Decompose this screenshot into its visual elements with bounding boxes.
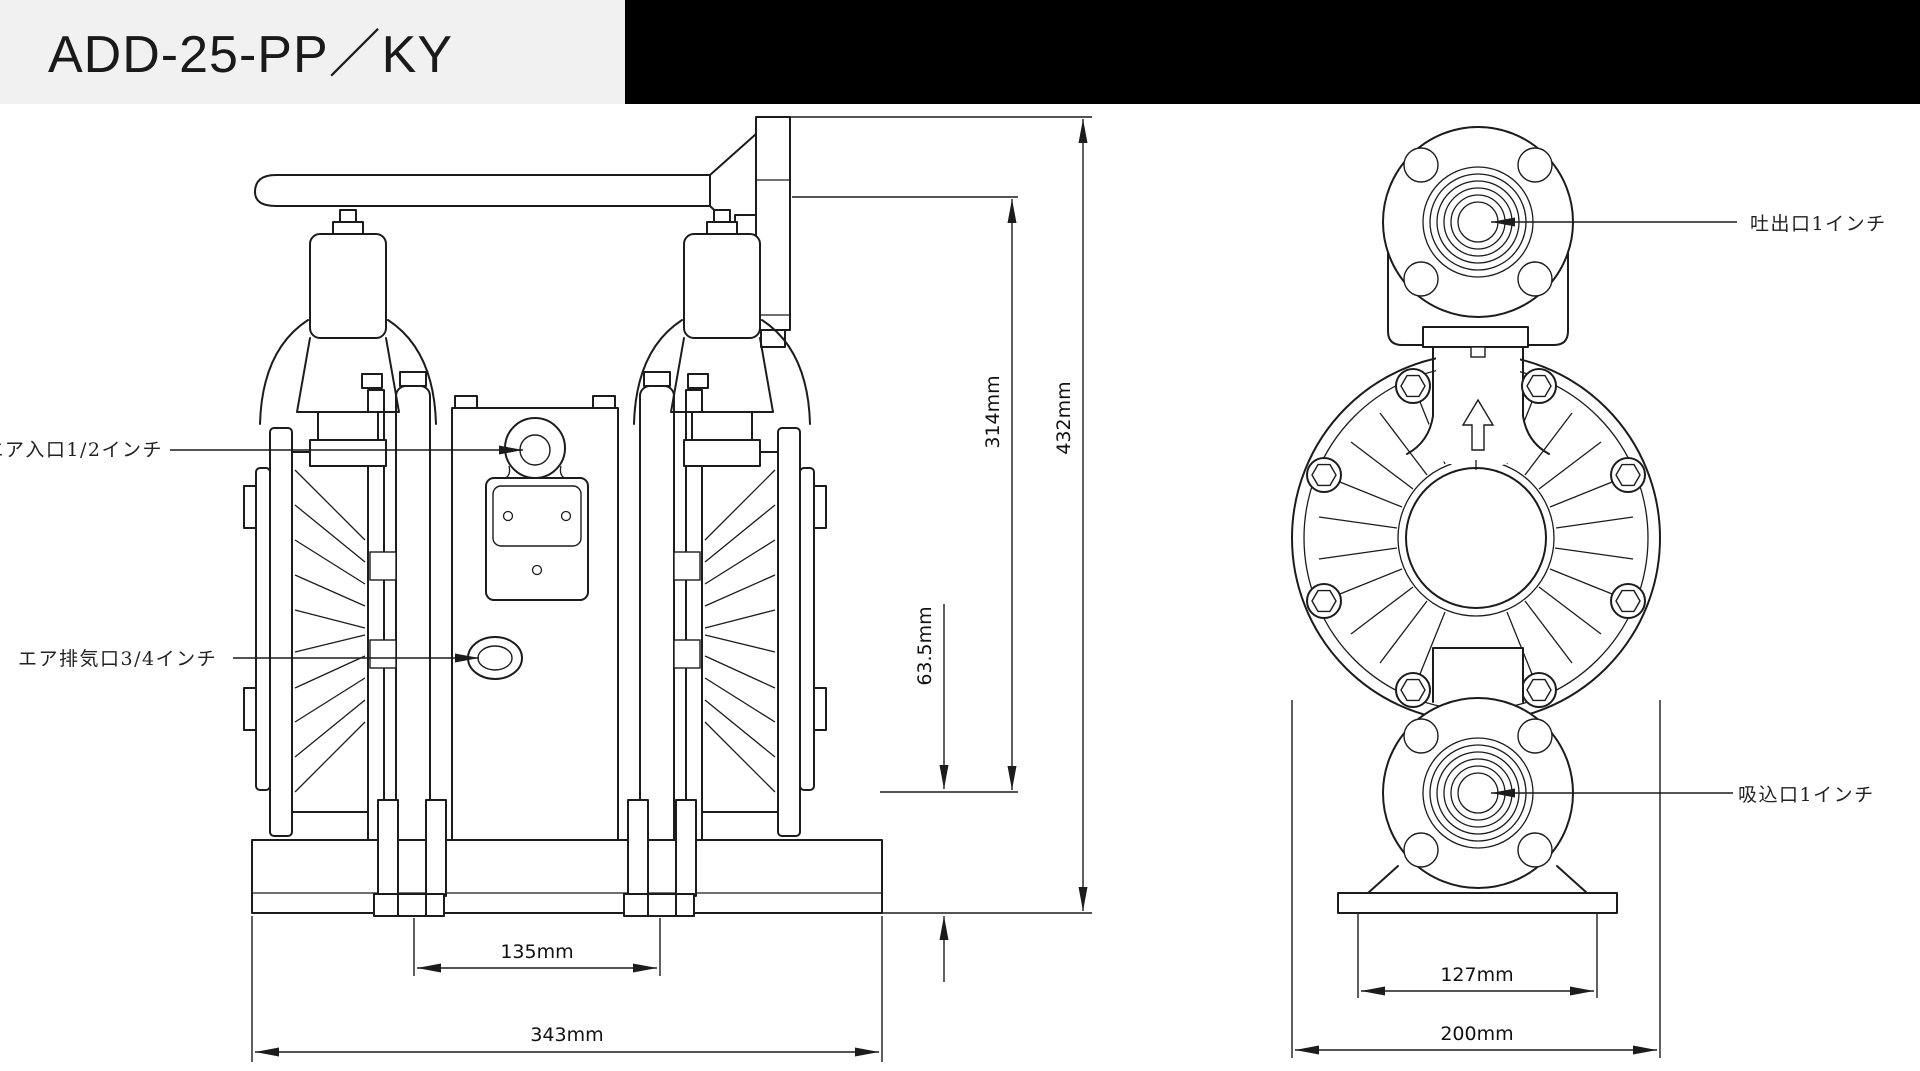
dim-overall-height-label: 432mm <box>1053 381 1075 454</box>
dim-discharge-height-label: 314mm <box>982 375 1004 448</box>
front-view: 動力エア入口1/2インチ エア排気口3/4インチ 314mm 432mm <box>0 117 1092 1062</box>
dim-base-width-label: 127mm <box>1440 964 1513 986</box>
air-inlet-label: 動力エア入口1/2インチ <box>0 439 163 461</box>
page: ADD-25-PP／KY <box>0 0 1920 1071</box>
air-inlet-callout: 動力エア入口1/2インチ <box>0 439 523 461</box>
side-main-housing <box>1292 347 1660 722</box>
dim-discharge-height: 314mm <box>982 199 1012 790</box>
side-discharge-flange <box>1383 127 1573 357</box>
dim-foot-pitch-label: 135mm <box>500 941 573 963</box>
page-title: ADD-25-PP／KY <box>48 26 453 84</box>
air-exhaust-label: エア排気口3/4インチ <box>18 648 217 670</box>
air-inlet-port <box>500 418 570 480</box>
dim-side-overall-width-label: 200mm <box>1440 1023 1513 1045</box>
dim-base-height-label: 63.5mm <box>914 606 936 685</box>
dim-side-overall-width: 200mm <box>1295 1023 1657 1050</box>
dim-overall-width: 343mm <box>255 1024 879 1052</box>
dim-base-height: 63.5mm <box>914 604 944 982</box>
side-view: 吐出口1インチ 吸込口1インチ 127mm 200mm <box>1292 127 1887 1058</box>
dim-foot-pitch: 135mm <box>417 941 657 968</box>
discharge-port-label: 吐出口1インチ <box>1750 213 1887 235</box>
dim-overall-width-label: 343mm <box>530 1024 603 1046</box>
header-black-bar <box>625 0 1920 104</box>
suction-port-label: 吸込口1インチ <box>1738 784 1875 806</box>
pump-technical-drawing: ADD-25-PP／KY <box>0 0 1920 1071</box>
dim-base-width: 127mm <box>1361 964 1594 991</box>
dim-overall-height: 432mm <box>1053 119 1083 911</box>
front-center-body <box>452 396 618 845</box>
